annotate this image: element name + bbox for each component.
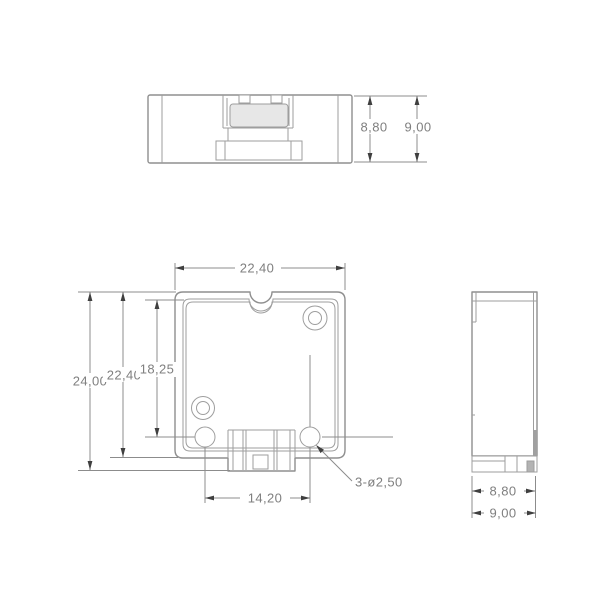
arrow-icon bbox=[336, 266, 345, 271]
mounting-hole-left bbox=[195, 427, 215, 447]
drawing-canvas: 8,80 9,00 bbox=[0, 0, 600, 600]
dim-text-side-outer-depth: 9,00 bbox=[490, 506, 517, 521]
arrow-icon bbox=[472, 489, 481, 494]
front-view: 22,40 24,00 22,40 18,25 bbox=[69, 261, 403, 507]
dim-text-overall-height: 24,00 bbox=[73, 374, 108, 389]
dim-text-top-inner-height: 8,80 bbox=[361, 120, 388, 135]
dim-text-top-width: 22,40 bbox=[240, 261, 275, 276]
dim-text-inner-height: 18,25 bbox=[140, 362, 175, 377]
arrow-icon bbox=[88, 461, 93, 470]
arrow-icon bbox=[205, 496, 214, 501]
dim-text-hole-spacing: 14,20 bbox=[248, 491, 283, 506]
arrow-icon bbox=[155, 300, 160, 309]
arrow-icon bbox=[155, 428, 160, 437]
arrow-icon bbox=[121, 448, 126, 457]
boss-top-right-hole bbox=[309, 312, 322, 325]
drawing-sheet: 8,80 9,00 bbox=[0, 0, 600, 600]
side-view-dimensions: 8,80 9,00 bbox=[472, 476, 536, 521]
arrow-icon bbox=[527, 511, 536, 516]
connector-insert-block bbox=[527, 461, 534, 472]
channel-cavity bbox=[230, 104, 288, 127]
connector-key-square bbox=[253, 455, 268, 469]
top-view: 8,80 9,00 bbox=[148, 95, 437, 163]
arrow-icon bbox=[175, 266, 184, 271]
side-view-body-outline bbox=[472, 292, 537, 456]
top-view-dimensions: 8,80 9,00 bbox=[353, 96, 437, 162]
side-view: 8,80 9,00 bbox=[472, 292, 537, 521]
boss-mid-left-hole bbox=[197, 402, 210, 415]
arrow-icon bbox=[121, 292, 126, 301]
mounting-hole-right bbox=[300, 427, 320, 447]
dim-text-holes-note: 3-ø2,50 bbox=[355, 475, 403, 490]
dim-text-side-inner-depth: 8,80 bbox=[490, 484, 517, 499]
arrow-icon bbox=[368, 96, 373, 105]
channel-key-notch-left bbox=[239, 95, 250, 103]
channel-key-notch-right bbox=[271, 95, 282, 103]
arrow-icon bbox=[526, 489, 535, 494]
side-wall-thick-segment bbox=[534, 430, 538, 456]
arrow-icon bbox=[301, 496, 310, 501]
arrow-icon bbox=[368, 153, 373, 162]
arrow-icon bbox=[88, 292, 93, 301]
arrow-icon bbox=[415, 153, 420, 162]
dim-text-top-outer-height: 9,00 bbox=[405, 120, 432, 135]
arrow-icon bbox=[415, 96, 420, 105]
arrow-icon bbox=[472, 511, 481, 516]
